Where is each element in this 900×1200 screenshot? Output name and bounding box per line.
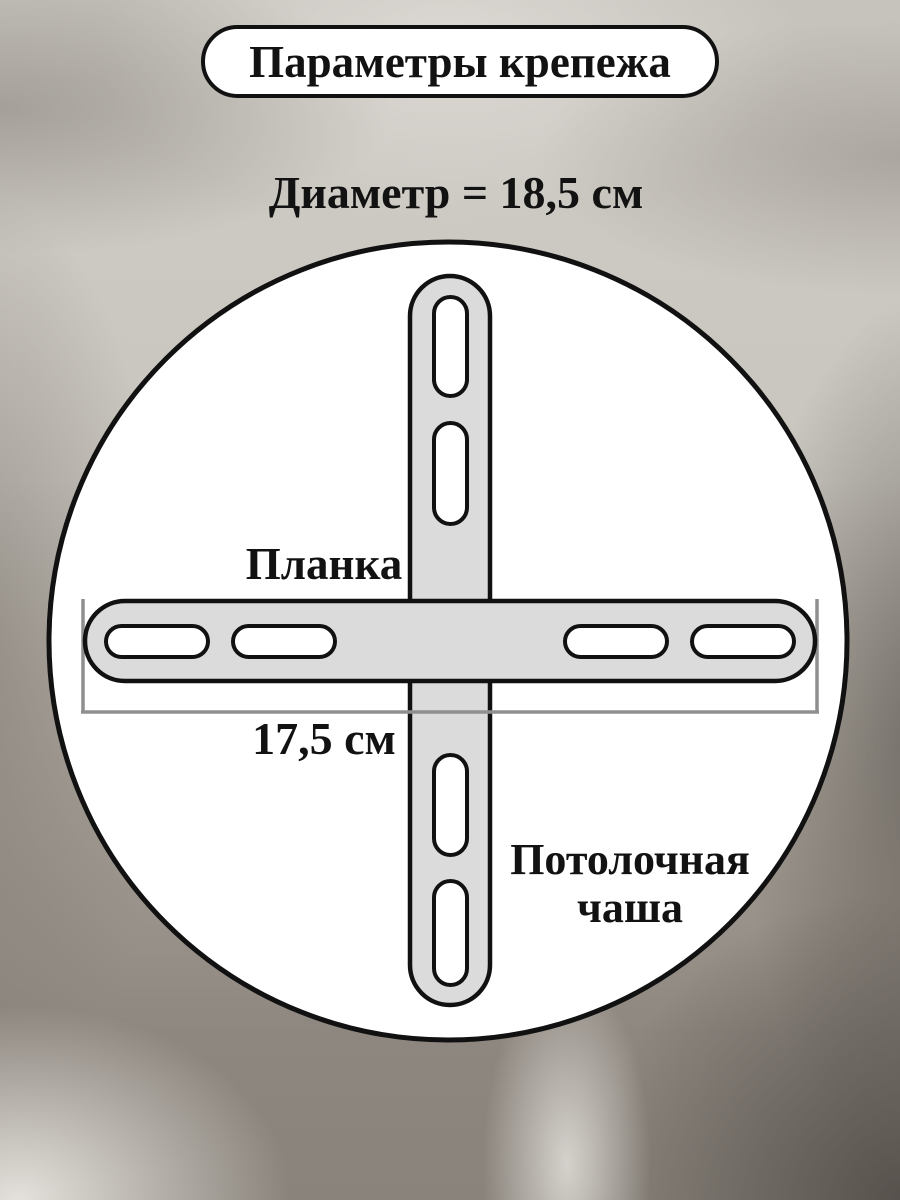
cup-label-line2: чаша	[455, 884, 805, 932]
cup-label-line1: Потолочная	[455, 836, 805, 884]
bracket-slot-vertical-top-outer	[434, 297, 467, 396]
bracket-slot-vertical-top-inner	[434, 423, 467, 524]
title-badge-text: Параметры крепежа	[249, 36, 671, 88]
plank-label: Планка	[124, 538, 524, 590]
bracket-slot-horizontal-right-outer	[692, 626, 794, 657]
bracket-slot-horizontal-left-inner	[233, 626, 335, 657]
diameter-label: Диаметр = 18,5 см	[0, 166, 900, 219]
bracket-slot-horizontal-right-inner	[565, 626, 667, 657]
plank-length-label: 17,5 см	[124, 712, 524, 765]
bracket-slot-horizontal-left-outer	[106, 626, 208, 657]
cup-label: Потолочная чаша	[455, 836, 805, 932]
title-badge: Параметры крепежа	[201, 25, 719, 98]
infographic-page: Параметры крепежа Диаметр = 18,5 см План…	[0, 0, 900, 1200]
